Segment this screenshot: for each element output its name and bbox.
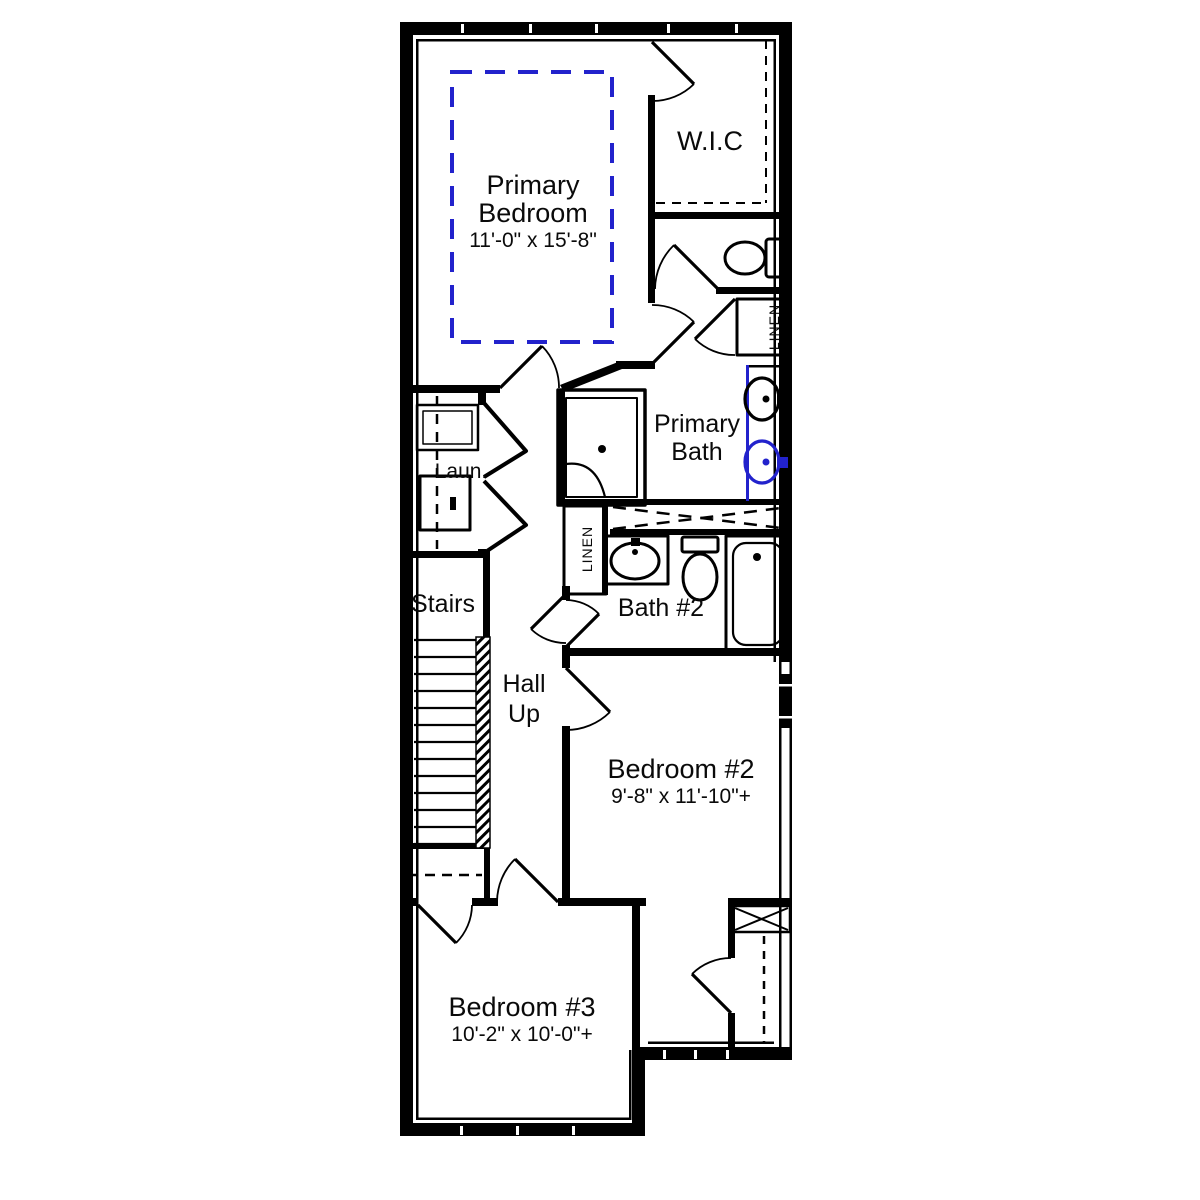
bifold-doors-laundry: [484, 403, 526, 553]
room-label-hall-2: Up: [508, 700, 540, 728]
room-label-primary-bath-1: Primary: [654, 410, 741, 438]
door-linen-upper: [695, 299, 735, 355]
door-wic: [652, 42, 694, 101]
room-dims-bedroom3: 10'-2" x 10'-0"+: [451, 1023, 592, 1046]
door-primary-bath: [652, 305, 694, 364]
room-dims-bedroom2: 9'-8" x 11'-10"+: [611, 785, 751, 808]
door-bedroom2-closet: [692, 958, 731, 1013]
room-label-linen-upper: LINEN: [766, 304, 782, 350]
washer-icon: [420, 476, 470, 530]
window-bedroom2-right: [779, 674, 792, 728]
vanity-bath2: [606, 536, 668, 584]
room-label-primary-bedroom-1: Primary: [487, 170, 580, 200]
room-label-primary-bath-2: Bath: [671, 438, 722, 466]
soffit-x: [613, 507, 789, 529]
room-label-bedroom3: Bedroom #3: [448, 992, 595, 1022]
stair-stringer-hatch: [476, 637, 490, 848]
stairs-treads: [414, 637, 490, 848]
floorplan-page: Primary Bedroom 11'-0" x 15'-8" W.I.C LI…: [0, 0, 1200, 1200]
door-bedroom2: [566, 668, 610, 730]
door-primary-bedroom: [500, 346, 559, 388]
angled-wall: [560, 362, 622, 392]
sink2-icon: [611, 538, 659, 579]
room-dims-primary-bedroom: 11'-0" x 15'-8": [469, 229, 597, 252]
room-label-bedroom2: Bedroom #2: [607, 754, 754, 784]
room-label-primary-bedroom-2: Bedroom: [478, 198, 588, 228]
door-understair-closet: [418, 905, 472, 943]
door-water-closet: [655, 245, 718, 289]
shower-icon: [558, 390, 645, 505]
room-label-bath2: Bath #2: [618, 594, 704, 622]
door-linen-hall: [531, 594, 566, 643]
door-bath2: [566, 600, 599, 647]
room-label-hall-1: Hall: [502, 670, 545, 698]
door-bedroom3: [497, 859, 558, 902]
toilet2-icon: [682, 537, 718, 600]
room-label-laundry: Laun.: [435, 460, 488, 483]
floorplan-drawing: Primary Bedroom 11'-0" x 15'-8" W.I.C LI…: [0, 0, 1200, 1200]
toilet-icon: [725, 239, 788, 277]
room-label-wic: W.I.C: [677, 126, 743, 156]
room-label-linen-hall: LINEN: [579, 526, 595, 572]
room-label-stairs: Stairs: [411, 590, 475, 618]
fixtures: [408, 40, 792, 1043]
